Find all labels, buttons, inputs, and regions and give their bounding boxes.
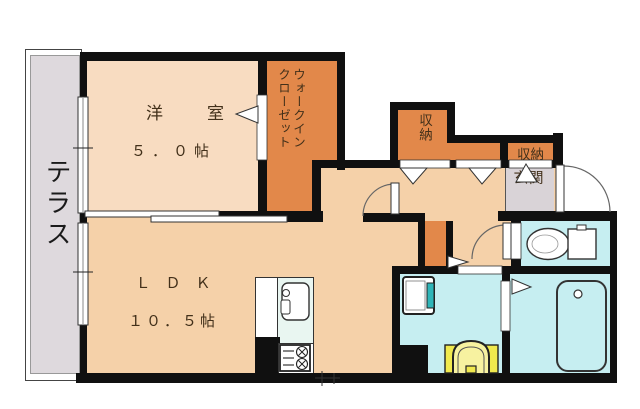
toilet-door-swing-icon — [472, 223, 511, 259]
storage-band-door-triangle-icon — [469, 168, 496, 184]
floor-plan: テラス 洋室 ５．０帖 ＬＤＫ １０．５帖 ウォークイン クローゼット 収納 収… — [0, 0, 640, 409]
wic-door-triangle-icon — [236, 106, 258, 123]
storage2-door-gap — [509, 160, 552, 168]
sliding-door-icon — [85, 211, 287, 222]
washroom-door-gap — [458, 266, 502, 274]
wic-door-gap — [257, 95, 267, 160]
grid-tick-marks — [315, 371, 340, 386]
gas-stove-icon — [280, 345, 310, 371]
storage1-door-triangle-icon — [400, 168, 427, 184]
entrance-door-swing-icon — [556, 165, 610, 212]
kitchen-sink-icon — [281, 283, 309, 320]
bathroom-door-triangle-icon — [512, 279, 531, 294]
toilet-door-gap — [511, 223, 521, 259]
bathroom-door-gap — [501, 281, 510, 331]
storage-band-door-gap — [456, 160, 501, 168]
window-terrace-lower-icon — [73, 223, 93, 325]
toilet-icon — [527, 225, 596, 260]
vanity-basin-icon — [445, 341, 498, 373]
bathtub-icon — [557, 281, 606, 371]
washing-machine-pan-icon — [403, 277, 434, 314]
storage1-door-gap — [400, 160, 450, 168]
symbols-overlay — [0, 0, 640, 409]
window-terrace-upper-icon — [73, 97, 93, 213]
ldk-door-swing-icon — [363, 183, 399, 216]
